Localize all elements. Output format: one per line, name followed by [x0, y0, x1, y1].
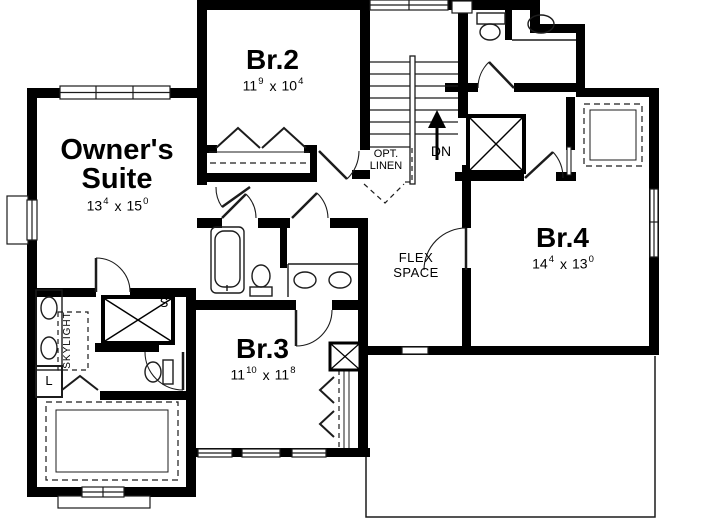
br3-windows [198, 449, 326, 457]
br2-closet-bifold-left [216, 128, 260, 148]
room-name: Br.2 [200, 46, 345, 74]
room-name: Br.4 [490, 224, 635, 252]
opt-linen-line2: LINEN [362, 160, 410, 172]
br3-closet-bifold-bottom [320, 411, 334, 437]
flex-line1: FLEX [375, 251, 457, 266]
br4-window [650, 189, 658, 257]
down-label: DN [426, 144, 456, 158]
owners-suite-dims: 134x150 [37, 198, 197, 213]
floor-plan: Owner's Suite 134x150 Br.2 119x104 Br.3 … [0, 0, 725, 523]
hall-bath-door [222, 194, 256, 218]
linen-label: L [41, 374, 57, 387]
br2-label: Br.2 119x104 [200, 46, 345, 93]
br2-dims: 119x104 [200, 78, 345, 93]
bathtub [211, 227, 244, 293]
room-name-line2: Suite [37, 165, 197, 194]
br4-label: Br.4 144x130 [490, 224, 635, 271]
top-bath-door [478, 62, 514, 88]
left-bump-window [7, 196, 37, 244]
flex-space-label: FLEX SPACE [375, 251, 457, 281]
owners-suite-door [216, 187, 250, 207]
opt-linen-line1: OPT. [362, 148, 410, 160]
skylight-label: SKYLIGHT [63, 305, 73, 375]
roof-outline [366, 356, 655, 517]
stairs-window [370, 0, 448, 10]
owners-bath-door [96, 258, 130, 292]
owners-toilet [145, 360, 173, 384]
br4-dims: 144x130 [490, 256, 635, 271]
hall-toilet [250, 265, 272, 296]
vanity-area-door [292, 193, 328, 218]
owners-suite-label: Owner's Suite 134x150 [37, 136, 197, 213]
opt-linen-label: OPT. LINEN [362, 148, 410, 173]
br3-dims: 1110x118 [190, 367, 335, 382]
closet-room-bifold [62, 376, 98, 390]
hall-vanity [288, 264, 358, 297]
br2-closet-bifold-right [262, 128, 306, 148]
owners-suite-window [60, 86, 170, 99]
hall-closet-x-symbol [468, 116, 524, 172]
top-toilet [477, 13, 505, 40]
shower-label: S [156, 296, 172, 309]
small-top-window [452, 1, 472, 13]
br3-label: Br.3 1110x118 [190, 335, 335, 382]
flex-wall-window [402, 347, 428, 354]
flex-line2: SPACE [375, 266, 457, 281]
room-name: Br.3 [190, 335, 335, 363]
room-name-line1: Owner's [37, 136, 197, 165]
closet-door-leaf [567, 147, 571, 175]
